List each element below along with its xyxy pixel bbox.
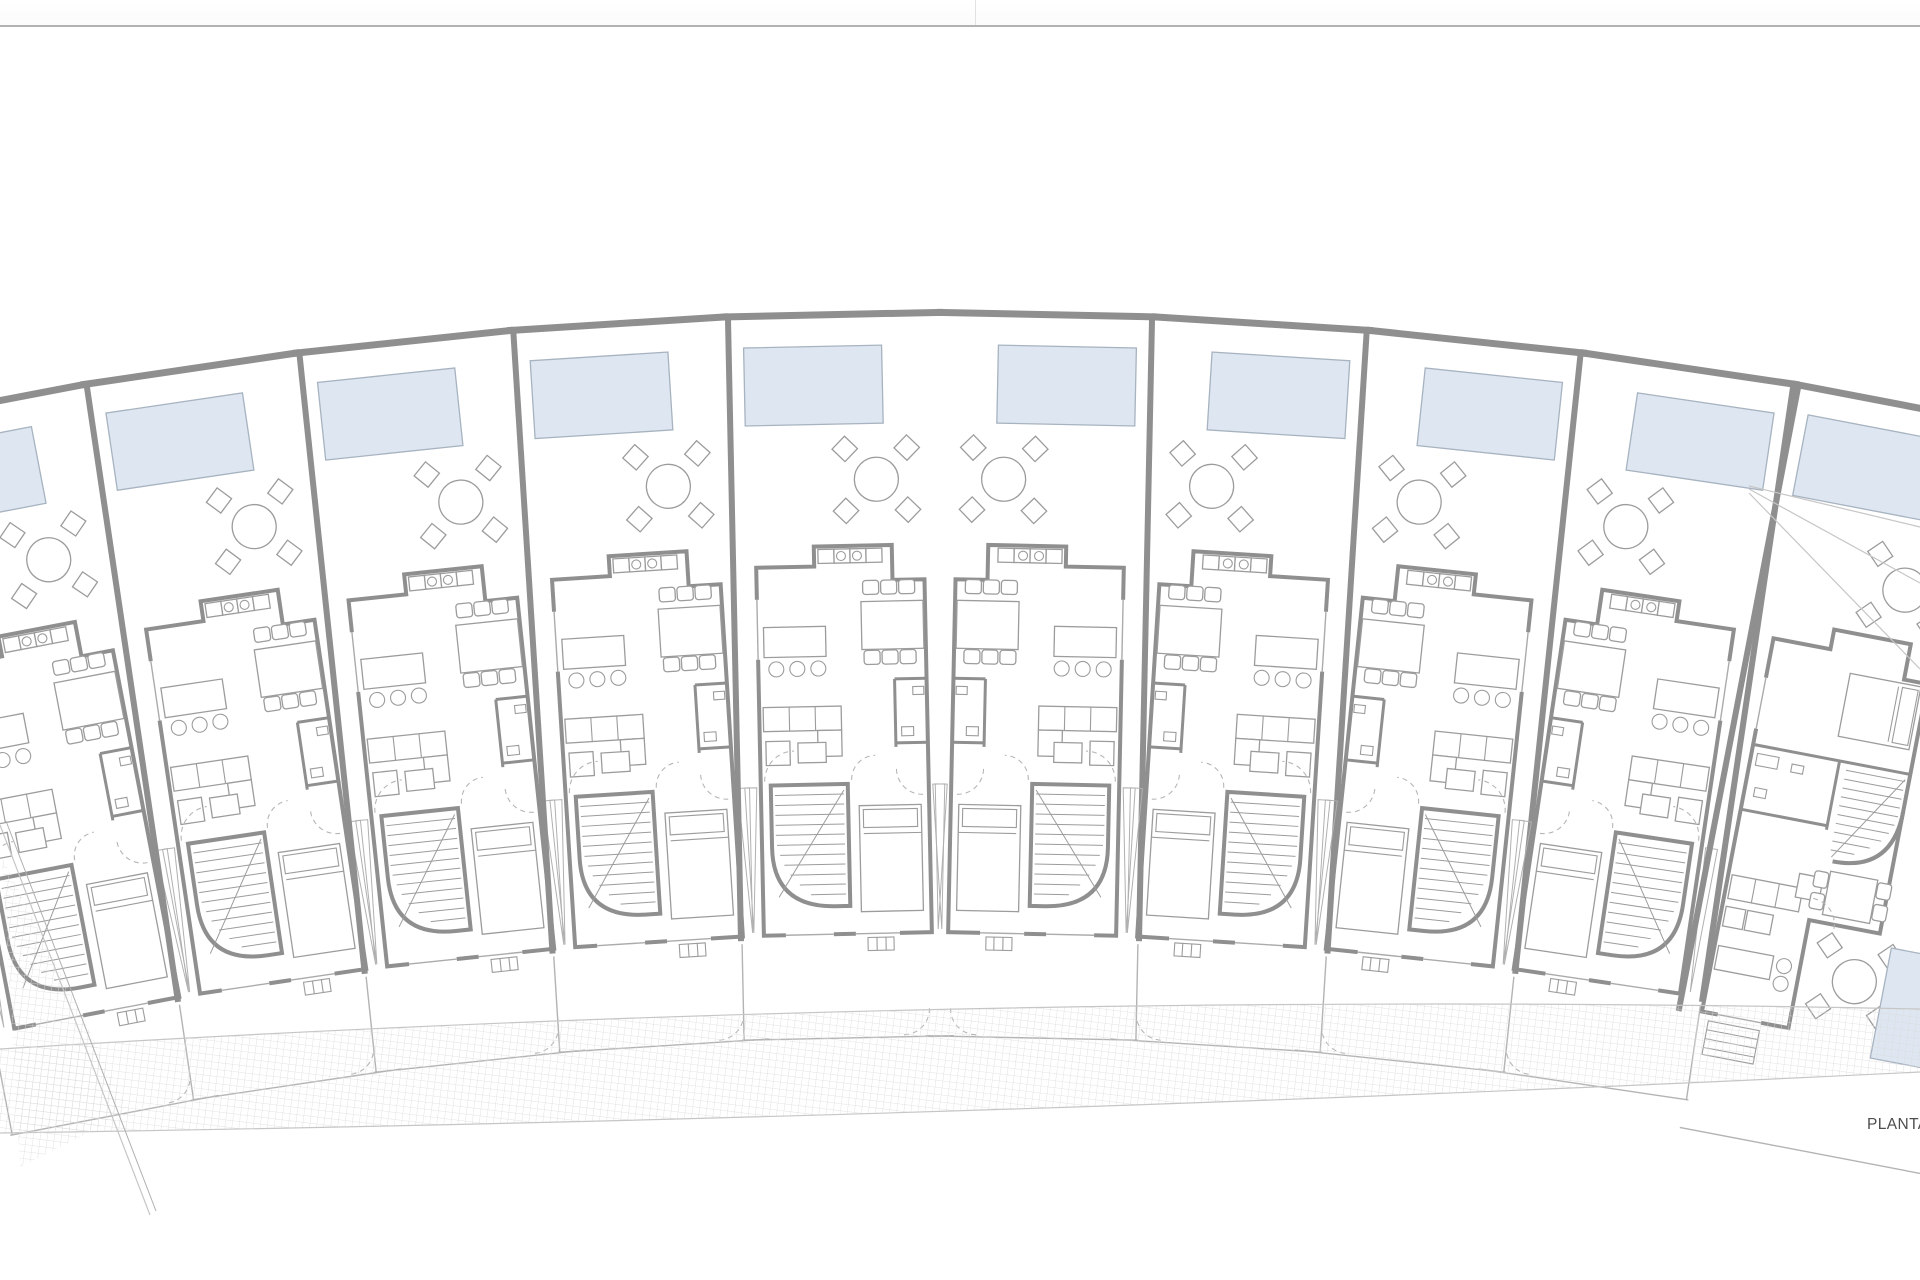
front-walkway [0, 1004, 1920, 1133]
unit-09 [1475, 349, 1800, 1101]
unit-06 [922, 309, 1158, 1040]
floor-plan-canvas [0, 27, 1920, 1280]
walkway-paving [0, 1004, 1920, 1133]
unit-05 [722, 309, 958, 1040]
page-top-divider-line [975, 0, 976, 25]
page: { "document": { "label": "PLANTA" }, "co… [0, 0, 1920, 1280]
plan-title-label: PLANTA [1867, 1116, 1920, 1134]
page-top-margin [0, 0, 1920, 27]
